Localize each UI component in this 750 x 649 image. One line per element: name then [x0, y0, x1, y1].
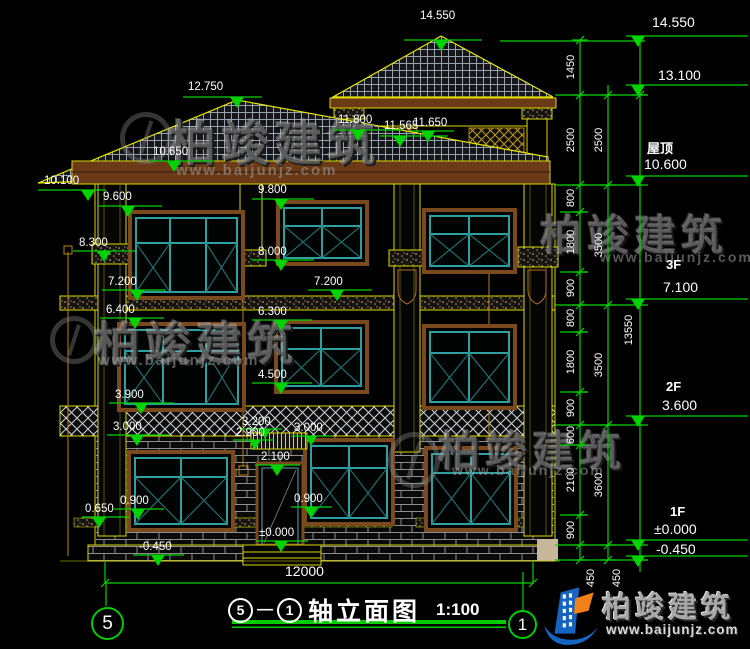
title-axis-from: 5 — [228, 598, 253, 623]
dimension-linework — [0, 0, 750, 649]
logo-url-text: www.baijunjz.com — [606, 622, 739, 637]
level-value: 13.100 — [658, 67, 701, 83]
elevation-marker: 8.000 — [258, 246, 287, 258]
elevation-marker: 9.800 — [258, 184, 287, 196]
elevation-marker: 0.900 — [120, 495, 149, 507]
logo-icon — [540, 580, 602, 648]
dim-value: 1800 — [565, 230, 577, 254]
title-text: 轴立面图 — [308, 592, 420, 628]
dim-value: 1800 — [565, 350, 577, 374]
dim-value: 3600 — [593, 473, 605, 497]
level-floor: 3F — [666, 257, 681, 272]
level-floor: 屋顶 — [647, 138, 673, 157]
dim-value: 900 — [565, 279, 577, 297]
elevation-marker: 8.300 — [79, 237, 108, 249]
dim-value: 2100 — [565, 468, 577, 492]
elevation-marker: 9.600 — [103, 191, 132, 203]
dim-value: 600 — [565, 426, 577, 444]
axis-bubble-1: 1 — [508, 610, 537, 639]
axis-bubble-5: 5 — [91, 607, 124, 640]
dim-value: 3500 — [593, 233, 605, 257]
elevation-marker: 10.650 — [153, 146, 188, 158]
dim-value: 800 — [565, 189, 577, 207]
level-value: 10.600 — [644, 156, 687, 172]
level-value: 14.550 — [652, 14, 695, 30]
elevation-marker: 10.100 — [44, 175, 79, 187]
dim-value: 900 — [565, 399, 577, 417]
level-value: -0.450 — [656, 541, 696, 557]
elevation-marker: 3.000 — [113, 421, 142, 433]
chain-lines — [580, 36, 640, 572]
logo-brand-text: 柏竣建筑 — [602, 584, 734, 626]
elevation-marker: 7.200 — [108, 276, 137, 288]
level-value: ±0.000 — [654, 521, 697, 537]
elevation-marker: ±0.000 — [259, 527, 294, 539]
level-floor: 2F — [666, 379, 681, 394]
title-scale: 1:100 — [436, 600, 479, 620]
dim-value: 2500 — [565, 128, 577, 152]
elevation-marker: 0.650 — [85, 503, 114, 515]
dim-value: 800 — [565, 309, 577, 327]
elevation-marker: 11.800 — [338, 114, 372, 126]
elevation-marker: 12.750 — [188, 81, 223, 93]
title-dash: — — [257, 601, 273, 619]
elevation-marker: 3.900 — [115, 389, 144, 401]
cad-elevation-drawing: 柏竣建筑 www.baijunjz.com 柏竣建筑 www.baijunjz.… — [0, 0, 750, 649]
level-value: 7.100 — [663, 279, 698, 295]
dim-value: 1450 — [565, 55, 577, 79]
elevation-marker: 14.550 — [420, 10, 455, 22]
elevation-marker: 3.000 — [294, 422, 323, 434]
elevation-marker: 2.100 — [261, 451, 290, 463]
overall-width-dim: 12000 — [285, 563, 324, 579]
title-axis-to: 1 — [277, 598, 302, 623]
elevation-marker: 2.900 — [236, 427, 265, 439]
dim-value: 900 — [565, 521, 577, 539]
brand-logo: 柏竣建筑 www.baijunjz.com — [540, 578, 750, 648]
level-lines — [626, 36, 748, 556]
elevation-marker: 0.900 — [294, 493, 323, 505]
elevation-marker: 6.400 — [106, 304, 135, 316]
level-value: 3.600 — [662, 397, 697, 413]
elevation-marker: -0.450 — [139, 541, 172, 553]
elevation-marker: 11.650 — [413, 117, 447, 129]
total-height-dim: 13550 — [623, 315, 635, 346]
level-floor: 1F — [670, 504, 685, 519]
dim-value: 3500 — [593, 353, 605, 377]
drawing-title: 5 — 1 轴立面图 1:100 — [228, 592, 480, 628]
elevation-marker: 4.500 — [258, 369, 287, 381]
elevation-marker: 7.200 — [314, 276, 343, 288]
elevation-marker: 6.300 — [258, 306, 287, 318]
dim-value: 2500 — [593, 128, 605, 152]
